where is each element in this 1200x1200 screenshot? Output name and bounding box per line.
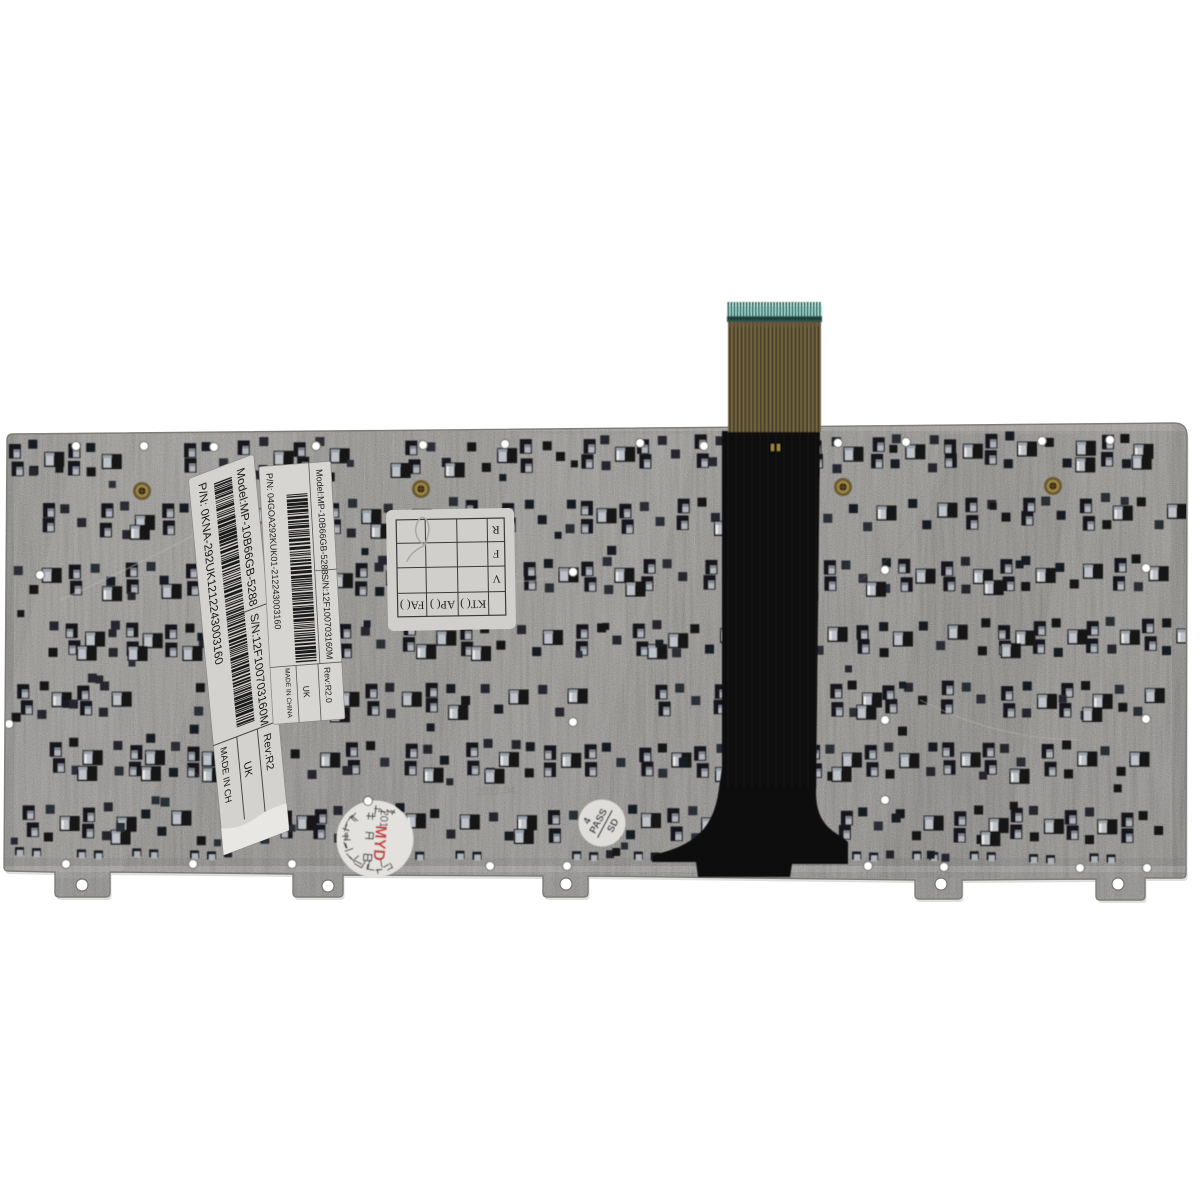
svg-text:KT( ): KT( ) xyxy=(460,597,486,609)
svg-text:MYD: MYD xyxy=(370,825,389,862)
svg-text:FA( ): FA( ) xyxy=(400,598,425,610)
svg-text:V: V xyxy=(492,572,501,584)
svg-text:UK: UK xyxy=(301,685,312,698)
svg-text:2012.04: 2012.04 xyxy=(476,785,516,798)
svg-text:R: R xyxy=(492,523,500,535)
svg-text:AP( ): AP( ) xyxy=(430,598,456,610)
svg-text:F: F xyxy=(493,547,500,559)
svg-text:Rev:R2.0: Rev:R2.0 xyxy=(322,667,334,704)
